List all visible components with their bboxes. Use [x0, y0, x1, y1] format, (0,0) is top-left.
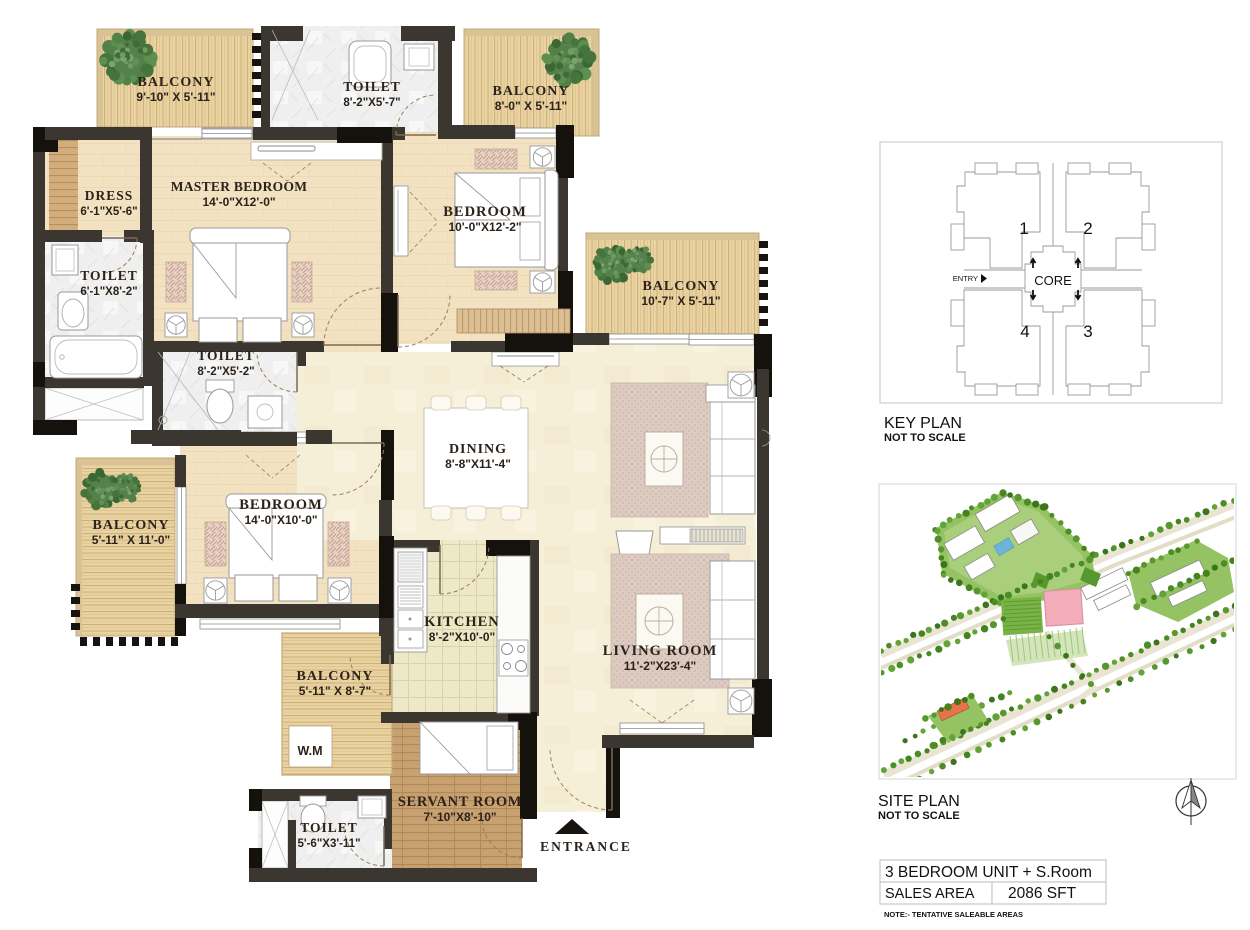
svg-text:4: 4 — [1020, 322, 1029, 341]
svg-text:TOILET: TOILET — [80, 268, 138, 283]
svg-text:W.M: W.M — [298, 744, 323, 758]
svg-text:NOT TO SCALE: NOT TO SCALE — [884, 432, 966, 444]
svg-text:BALCONY: BALCONY — [642, 279, 719, 294]
svg-text:3 BEDROOM UNIT + S.Room: 3 BEDROOM UNIT + S.Room — [885, 864, 1092, 881]
svg-text:BALCONY: BALCONY — [137, 75, 214, 90]
svg-text:TOILET: TOILET — [343, 79, 401, 94]
svg-text:SALES AREA: SALES AREA — [885, 886, 975, 902]
svg-text:LIVING ROOM: LIVING ROOM — [603, 643, 718, 659]
svg-text:CORE: CORE — [1034, 273, 1072, 288]
svg-text:9'-10" X 5'-11": 9'-10" X 5'-11" — [136, 90, 215, 104]
svg-text:DINING: DINING — [449, 442, 507, 457]
svg-text:7'-10"X8'-10": 7'-10"X8'-10" — [423, 810, 496, 824]
svg-text:BALCONY: BALCONY — [296, 669, 373, 684]
svg-text:5'-11" X 11'-0": 5'-11" X 11'-0" — [92, 533, 170, 547]
svg-text:NOT TO SCALE: NOT TO SCALE — [878, 810, 960, 822]
svg-text:1: 1 — [1019, 219, 1028, 238]
svg-text:6'-1"X8'-2": 6'-1"X8'-2" — [80, 286, 137, 298]
svg-text:ENTRY: ENTRY — [953, 274, 978, 283]
svg-text:6'-1"X5'-6": 6'-1"X5'-6" — [80, 206, 137, 218]
svg-text:3: 3 — [1083, 322, 1092, 341]
svg-text:SERVANT ROOM: SERVANT ROOM — [398, 794, 522, 810]
svg-text:8'-0" X 5'-11": 8'-0" X 5'-11" — [495, 99, 567, 113]
svg-text:5'-11" X 8'-7": 5'-11" X 8'-7" — [299, 684, 371, 698]
svg-text:MASTER BEDROOM: MASTER BEDROOM — [171, 179, 308, 194]
svg-text:KEY PLAN: KEY PLAN — [884, 415, 962, 432]
svg-text:14'-0"X12'-0": 14'-0"X12'-0" — [202, 195, 275, 209]
svg-text:TOILET: TOILET — [300, 820, 358, 835]
svg-text:BEDROOM: BEDROOM — [443, 204, 527, 220]
svg-text:8'-2"X5'-2": 8'-2"X5'-2" — [197, 366, 254, 378]
svg-text:8'-2"X5'-7": 8'-2"X5'-7" — [343, 97, 400, 109]
svg-text:10'-0"X12'-2": 10'-0"X12'-2" — [448, 220, 521, 234]
svg-text:2086 SFT: 2086 SFT — [1008, 885, 1077, 902]
svg-text:8'-8"X11'-4": 8'-8"X11'-4" — [445, 457, 511, 471]
svg-text:BALCONY: BALCONY — [92, 518, 169, 533]
svg-text:DRESS: DRESS — [85, 188, 134, 203]
svg-text:BEDROOM: BEDROOM — [239, 497, 323, 513]
svg-text:NOTE:- TENTATIVE SALEABLE AREA: NOTE:- TENTATIVE SALEABLE AREAS — [884, 910, 1023, 919]
svg-text:2: 2 — [1083, 219, 1092, 238]
svg-text:14'-0"X10'-0": 14'-0"X10'-0" — [244, 513, 317, 527]
svg-text:8'-2"X10'-0": 8'-2"X10'-0" — [429, 630, 495, 644]
svg-text:11'-2"X23'-4": 11'-2"X23'-4" — [624, 659, 696, 673]
svg-text:SITE PLAN: SITE PLAN — [878, 793, 960, 810]
svg-text:10'-7" X 5'-11": 10'-7" X 5'-11" — [641, 294, 720, 308]
svg-text:TOILET: TOILET — [197, 348, 255, 363]
svg-text:ENTRANCE: ENTRANCE — [540, 839, 632, 854]
svg-text:5'-6"X3'-11": 5'-6"X3'-11" — [297, 838, 360, 850]
svg-text:KITCHEN: KITCHEN — [424, 614, 500, 630]
svg-text:BALCONY: BALCONY — [492, 84, 569, 99]
